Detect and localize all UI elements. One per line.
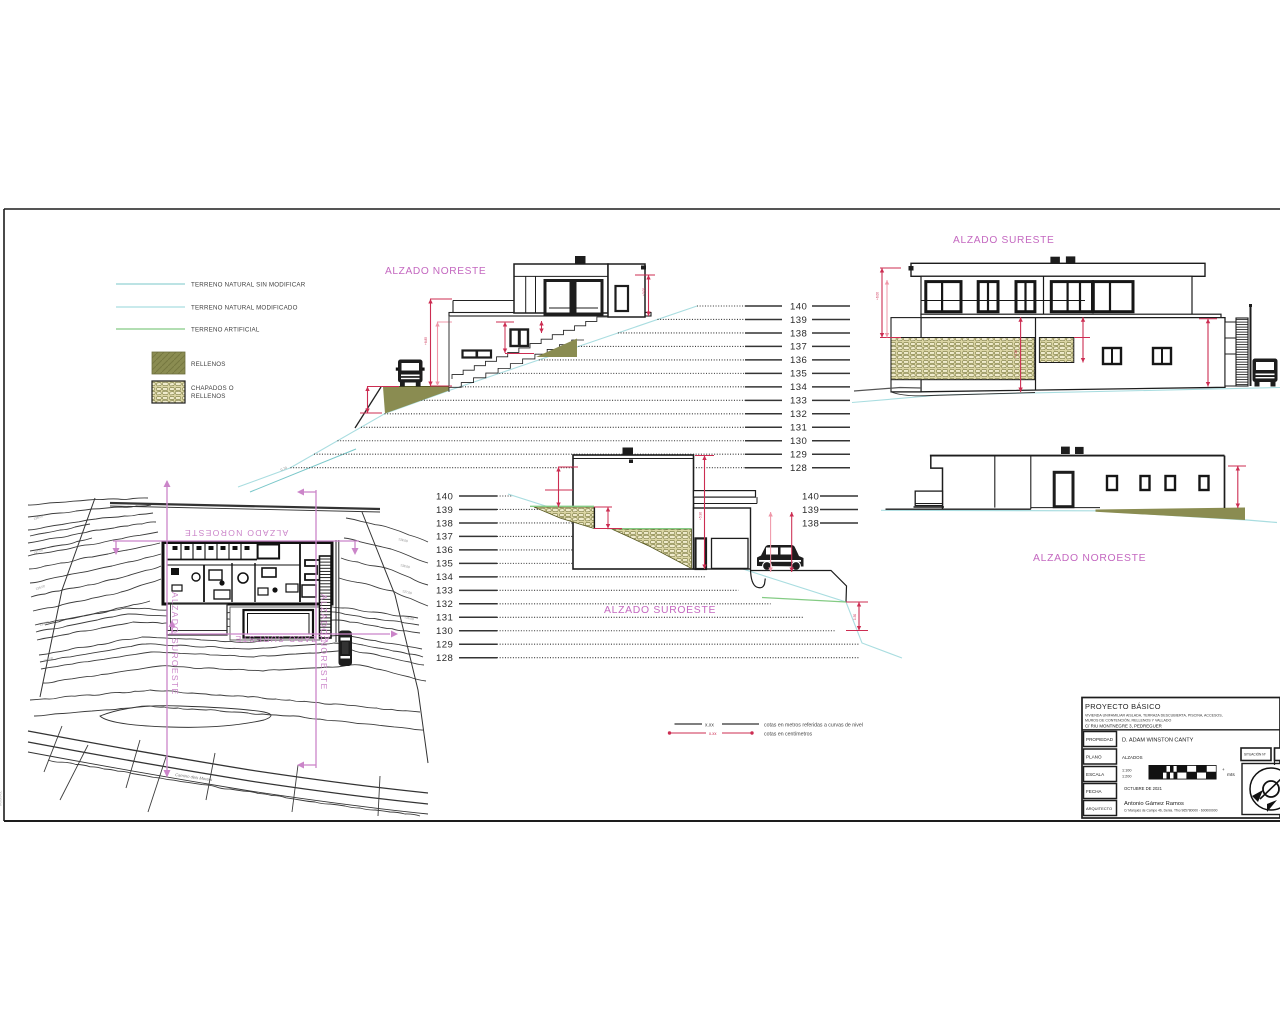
svg-text:PROPIEDAD: PROPIEDAD — [1086, 737, 1114, 742]
svg-text:RELLENOS: RELLENOS — [191, 393, 226, 400]
svg-text:CHAPADOS O: CHAPADOS O — [191, 385, 234, 392]
svg-text:OCTUBRE DE 2021: OCTUBRE DE 2021 — [1124, 786, 1163, 791]
svg-text:TERRENO ARTIFICIAL: TERRENO ARTIFICIAL — [191, 327, 260, 334]
svg-text:SITUACIÓN Nº: SITUACIÓN Nº — [1244, 752, 1267, 757]
svg-text:139: 139 — [436, 505, 453, 516]
svg-text:1:100: 1:100 — [1122, 769, 1132, 773]
svg-text:ALZADO NORESTE: ALZADO NORESTE — [385, 266, 486, 277]
svg-text:135: 135 — [436, 559, 453, 570]
svg-text:128: 128 — [790, 463, 807, 474]
svg-text:RELLENOS: RELLENOS — [191, 361, 226, 368]
svg-text:137: 137 — [436, 532, 453, 543]
svg-text:133: 133 — [436, 586, 453, 597]
svg-text:139: 139 — [790, 315, 807, 326]
svg-text:ALZADO SUROESTE: ALZADO SUROESTE — [604, 605, 716, 616]
svg-text:134: 134 — [790, 382, 807, 393]
svg-text:C/ Marqués de Campo 46, Denia.: C/ Marqués de Campo 46, Denia. Tfno 9657… — [1124, 809, 1218, 813]
svg-text:136: 136 — [790, 355, 807, 366]
svg-text:PLANO: PLANO — [1086, 755, 1102, 760]
svg-text:129: 129 — [790, 450, 807, 461]
svg-text:+5.90: +5.90 — [699, 512, 703, 520]
svg-text:130: 130 — [436, 626, 453, 637]
svg-text:129: 129 — [436, 640, 453, 651]
svg-text:ARQUITECTO: ARQUITECTO — [1086, 806, 1112, 811]
svg-text:ALZADO NOROESTE: ALZADO NOROESTE — [1033, 553, 1146, 564]
svg-text:133: 133 — [790, 396, 807, 407]
svg-text:138: 138 — [790, 328, 807, 339]
svg-text:134: 134 — [436, 572, 453, 583]
svg-text:139: 139 — [802, 505, 819, 516]
svg-text:ALZADOS: ALZADOS — [1122, 755, 1143, 760]
svg-text:+6.00: +6.00 — [876, 292, 880, 300]
svg-text:mts: mts — [1227, 772, 1235, 778]
svg-text:137: 137 — [790, 342, 807, 353]
svg-text:ALZADO SURESTE: ALZADO SURESTE — [234, 634, 330, 644]
svg-text:138: 138 — [436, 518, 453, 529]
svg-text:V-00000-GC: V-00000-GC — [0, 790, 3, 806]
svg-text:+7.45: +7.45 — [1014, 350, 1018, 358]
svg-text:ALZADO SURESTE: ALZADO SURESTE — [953, 235, 1055, 246]
svg-text:PROYECTO BÁSICO: PROYECTO BÁSICO — [1085, 702, 1161, 711]
svg-text:TERRENO NATURAL MODIFICADO: TERRENO NATURAL MODIFICADO — [191, 305, 298, 312]
svg-text:136: 136 — [436, 545, 453, 556]
svg-text:Antonio Gámez Ramos: Antonio Gámez Ramos — [1124, 801, 1184, 807]
svg-text:138: 138 — [802, 518, 819, 529]
svg-text:+8.85: +8.85 — [424, 337, 428, 345]
svg-text:VIVIENDA UNIFAMILIAR AISLADA,: VIVIENDA UNIFAMILIAR AISLADA, TERRAZA DE… — [1085, 714, 1223, 718]
svg-text:130: 130 — [790, 436, 807, 447]
svg-text:ALZADO NOROESTE: ALZADO NOROESTE — [184, 528, 289, 538]
svg-text:ALZADO SUROESTE: ALZADO SUROESTE — [170, 592, 180, 696]
svg-text:128: 128 — [436, 653, 453, 664]
svg-text:MUROS DE CONTENCIÓN, RELLENOS: MUROS DE CONTENCIÓN, RELLENOS Y VALLADO — [1085, 718, 1171, 723]
svg-text:140: 140 — [802, 491, 819, 502]
svg-text:140: 140 — [790, 301, 807, 312]
svg-text:140: 140 — [436, 491, 453, 502]
svg-text:x.xx: x.xx — [705, 723, 714, 729]
svg-text:+3.00: +3.00 — [642, 288, 646, 296]
svg-text:C/ RIU MONTNEGRE 3, PEDREGUER: C/ RIU MONTNEGRE 3, PEDREGUER — [1085, 724, 1162, 729]
svg-text:ESCALA: ESCALA — [1086, 772, 1105, 777]
svg-text:x.xx: x.xx — [709, 731, 717, 736]
svg-text:132: 132 — [790, 409, 807, 420]
svg-text:cotas en metros referidas a cu: cotas en metros referidas a curvas de ni… — [764, 723, 863, 729]
svg-text:131: 131 — [790, 423, 807, 434]
svg-text:132: 132 — [436, 599, 453, 610]
svg-text:135: 135 — [790, 369, 807, 380]
svg-text:131: 131 — [436, 613, 453, 624]
svg-text:cotas en centímetros: cotas en centímetros — [764, 732, 813, 738]
svg-text:1:200: 1:200 — [1122, 775, 1132, 779]
svg-text:TERRENO NATURAL SIN MODIFICAR: TERRENO NATURAL SIN MODIFICAR — [191, 282, 306, 289]
svg-text:1.50: 1.50 — [853, 614, 857, 620]
svg-text:FECHA: FECHA — [1086, 789, 1103, 794]
svg-text:D. ADAM WINSTON CANTY: D. ADAM WINSTON CANTY — [1122, 738, 1194, 744]
svg-text:+: + — [1222, 767, 1225, 772]
